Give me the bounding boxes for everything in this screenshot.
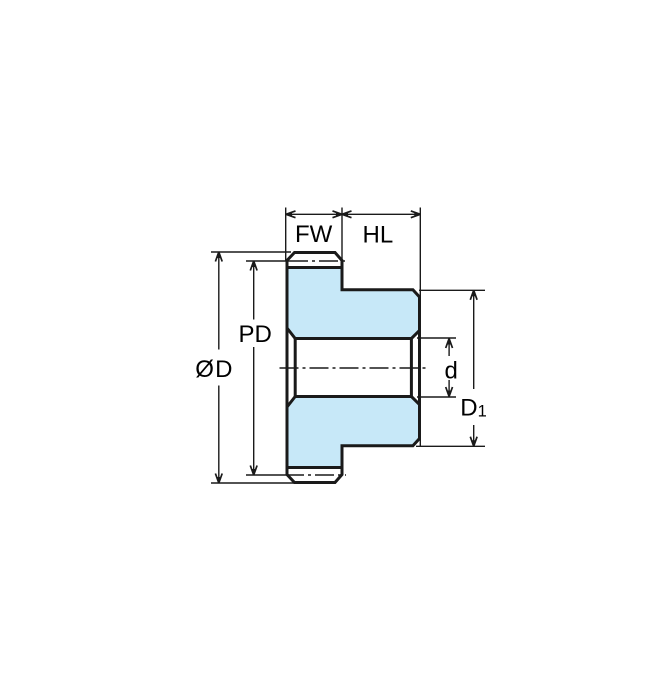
svg-text:d: d xyxy=(445,358,458,385)
svg-text:ØD: ØD xyxy=(195,356,233,383)
svg-text:PD: PD xyxy=(239,321,272,348)
svg-text:HL: HL xyxy=(363,222,394,249)
svg-text:FW: FW xyxy=(295,221,333,248)
